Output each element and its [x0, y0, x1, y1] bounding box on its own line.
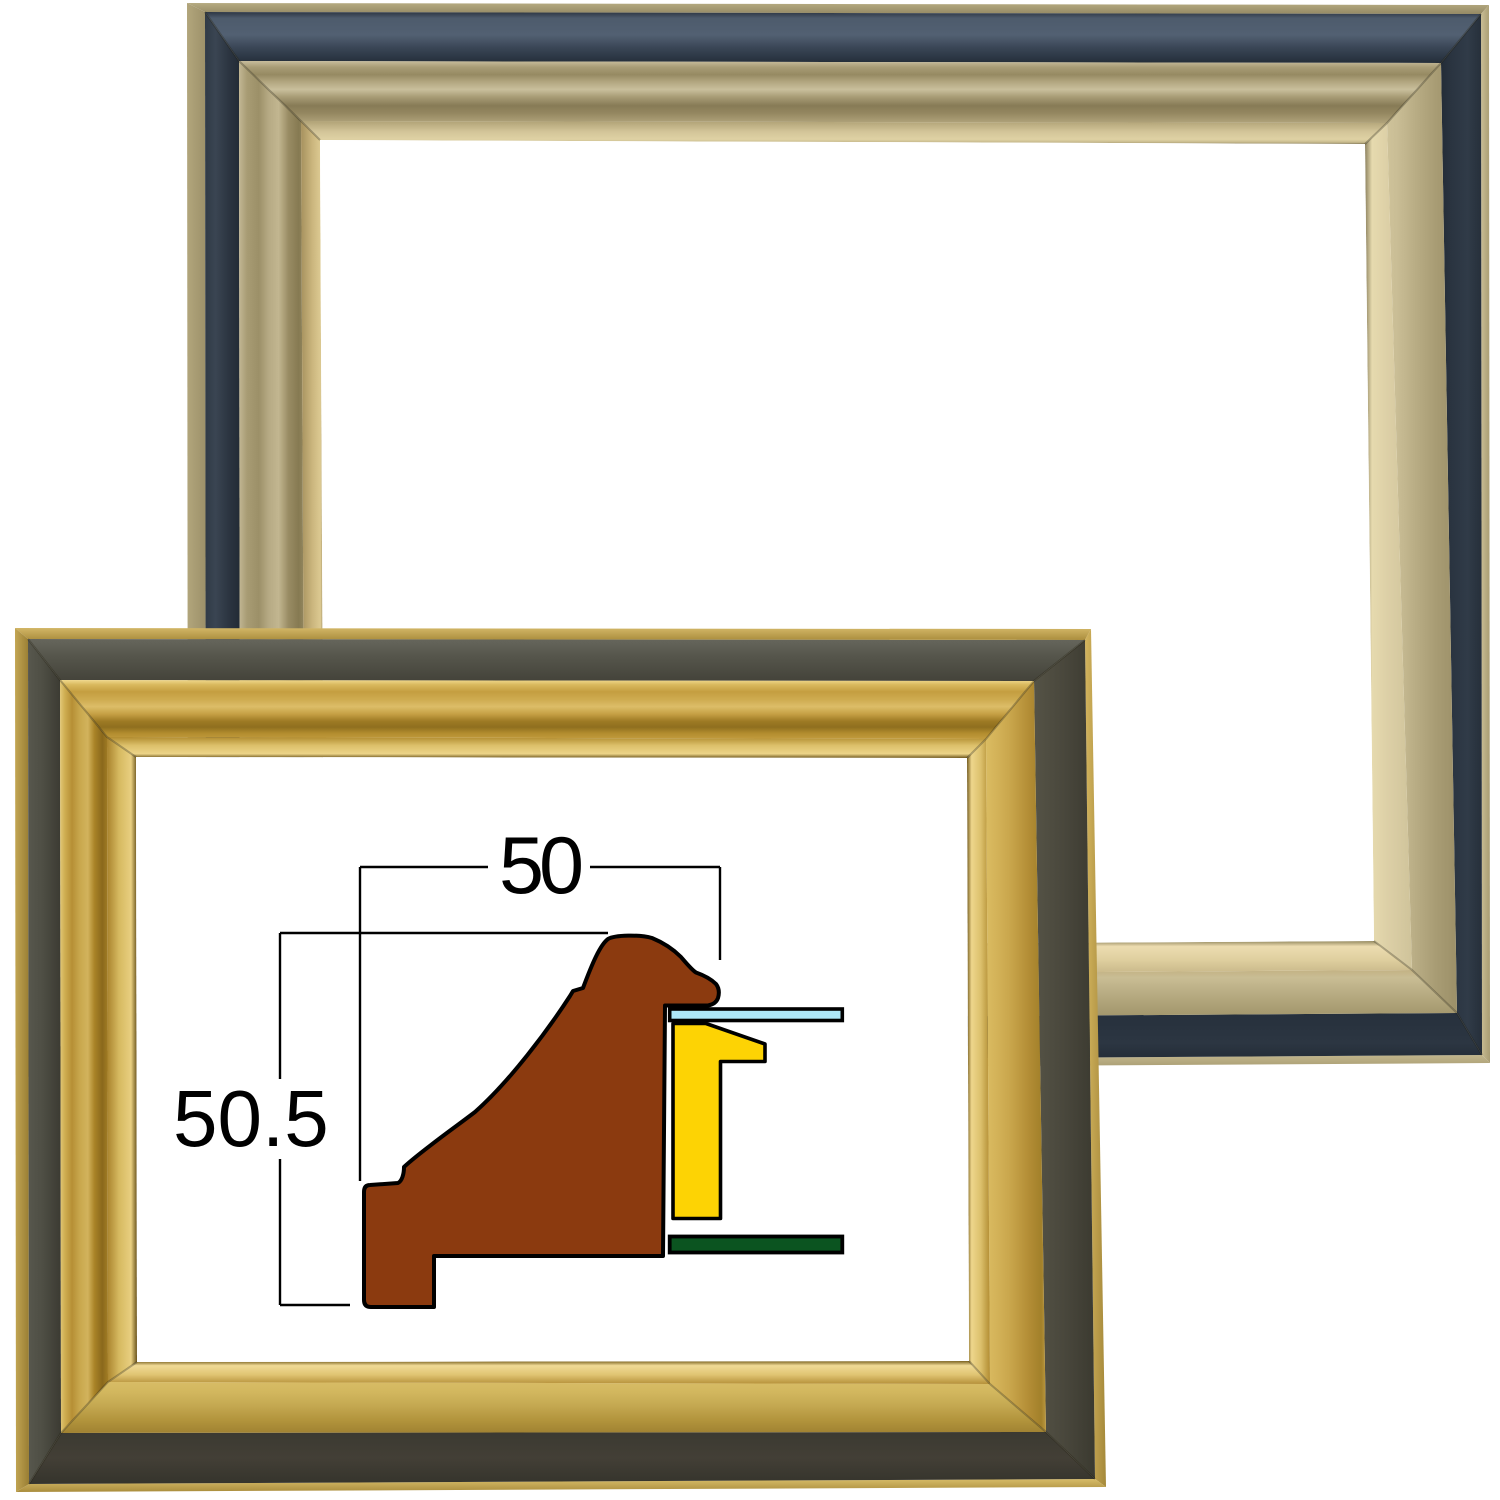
svg-text:50: 50 [499, 821, 581, 911]
svg-text:50.5: 50.5 [173, 1074, 329, 1163]
